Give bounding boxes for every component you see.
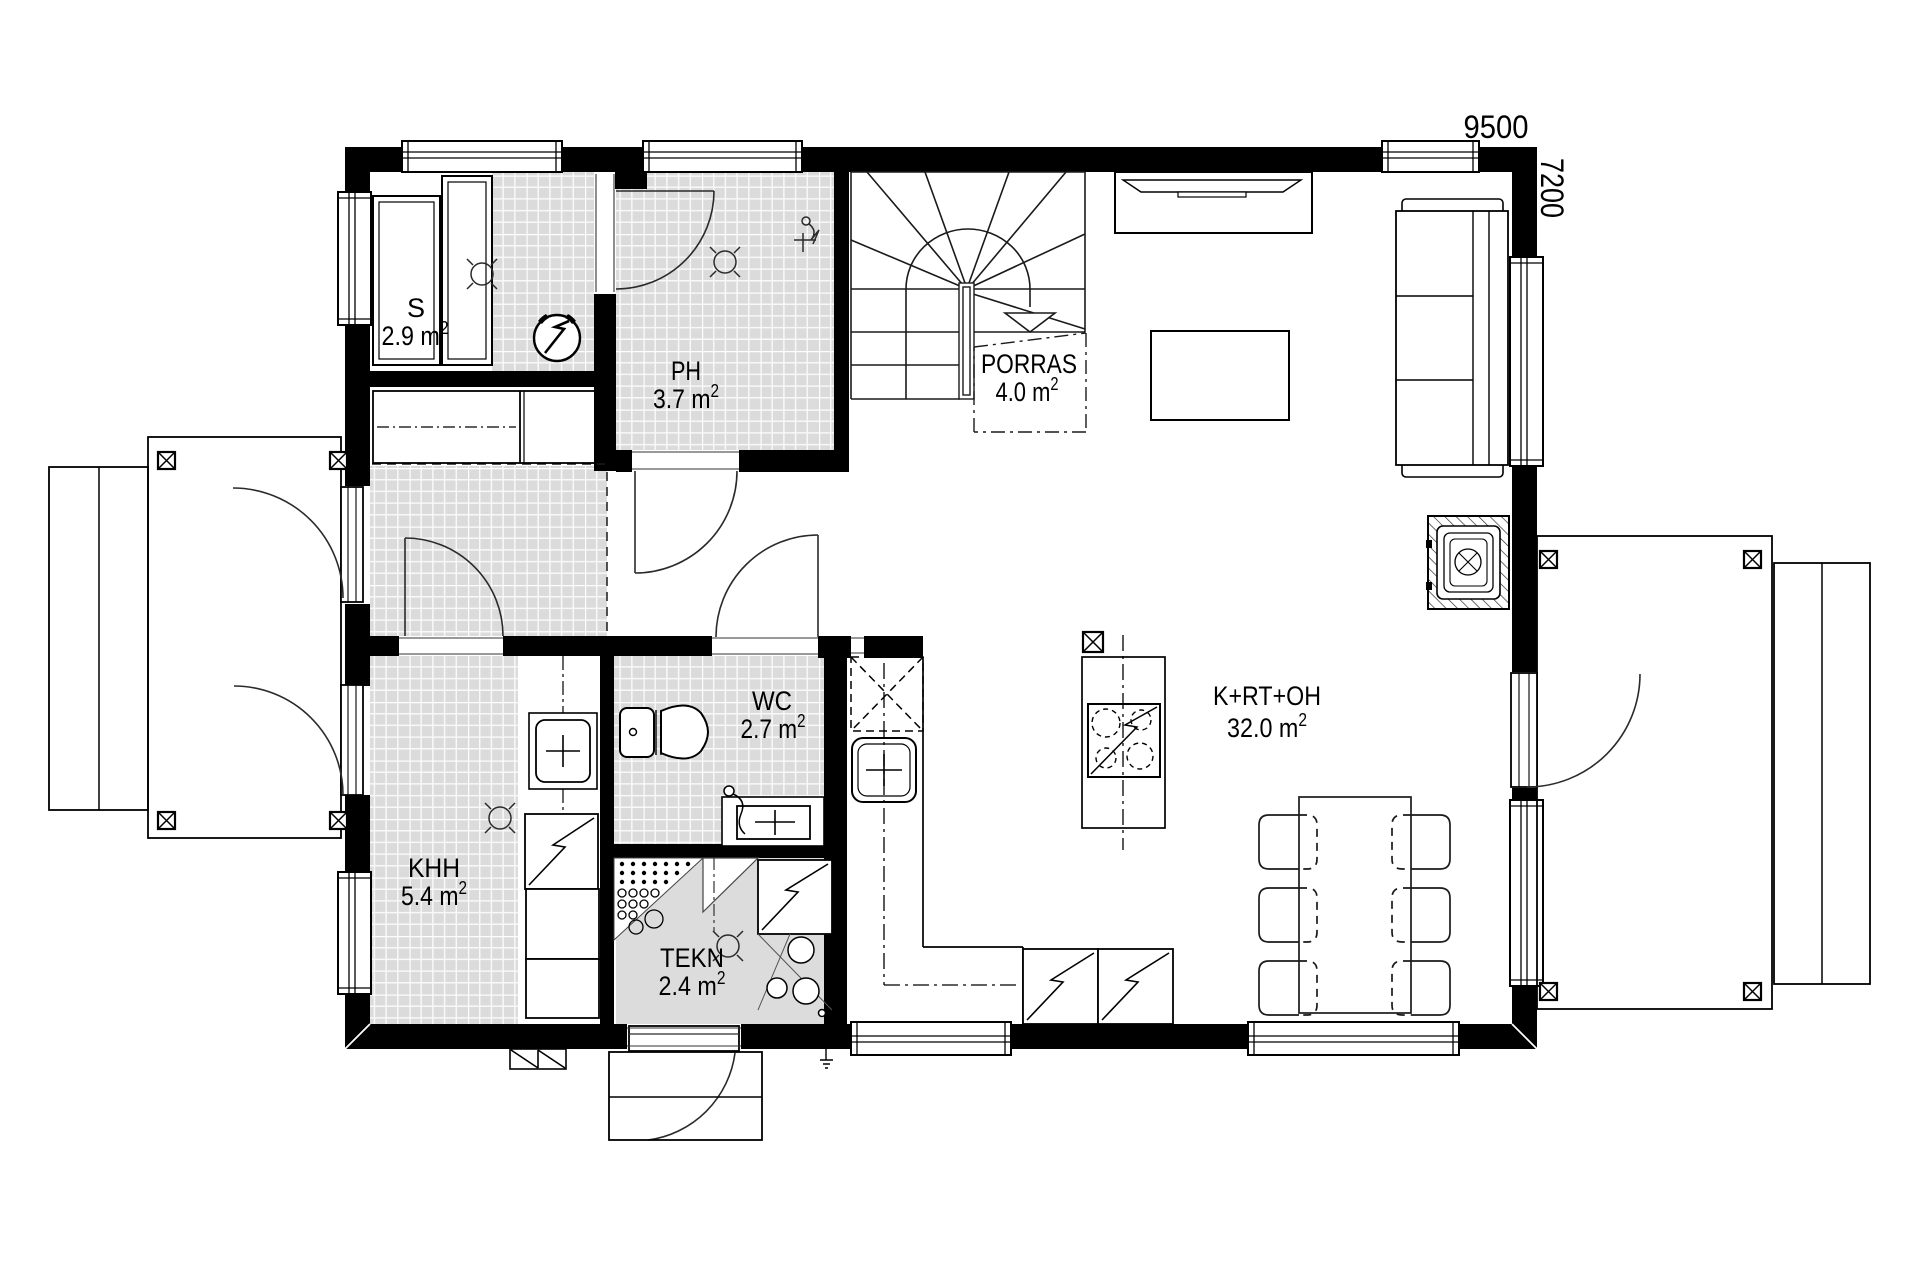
svg-text:32.0 m2: 32.0 m2 [1227, 710, 1307, 743]
svg-text:3.7 m2: 3.7 m2 [653, 381, 719, 414]
svg-text:PORRAS: PORRAS [981, 349, 1077, 379]
svg-text:WC: WC [752, 686, 792, 716]
svg-text:S: S [407, 293, 425, 323]
svg-text:2.9 m2: 2.9 m2 [382, 318, 449, 351]
svg-text:9500: 9500 [1464, 109, 1529, 145]
svg-text:2.4 m2: 2.4 m2 [659, 968, 726, 1001]
svg-text:5.4 m2: 5.4 m2 [401, 878, 467, 911]
svg-text:2.7 m2: 2.7 m2 [741, 711, 806, 744]
svg-text:PH: PH [671, 356, 701, 386]
svg-text:KHH: KHH [408, 853, 460, 883]
svg-text:K+RT+OH: K+RT+OH [1213, 681, 1321, 711]
svg-text:TEKN: TEKN [660, 943, 724, 973]
svg-text:4.0 m2: 4.0 m2 [996, 374, 1059, 407]
svg-text:7200: 7200 [1534, 158, 1570, 218]
